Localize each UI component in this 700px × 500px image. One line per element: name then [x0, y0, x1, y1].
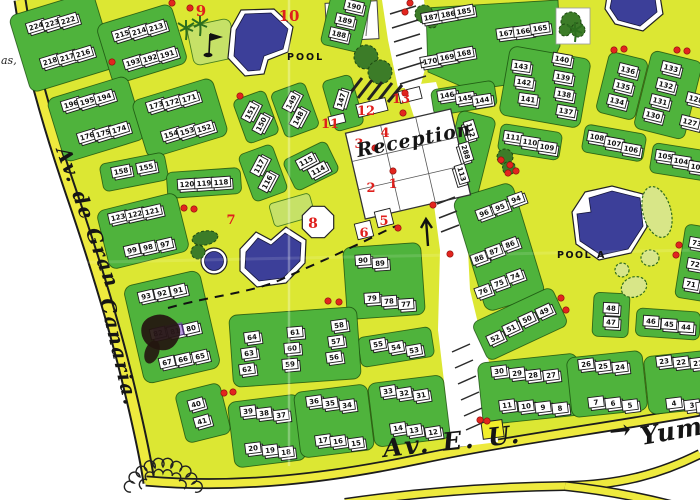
- building-block: 142: [513, 75, 536, 91]
- red-dot-marker: [395, 225, 401, 231]
- building-block: 72: [686, 257, 700, 273]
- red-area-number: 1: [388, 177, 397, 192]
- building-number: 79: [367, 294, 377, 303]
- red-dot-marker: [390, 168, 396, 174]
- red-dot-marker: [181, 205, 187, 211]
- building-block: 118: [211, 176, 233, 191]
- building-number: 30: [494, 367, 505, 376]
- building-number: 89: [375, 259, 385, 268]
- building-number: 77: [401, 300, 411, 309]
- red-dot-marker: [109, 59, 115, 65]
- red-dot-marker: [676, 242, 682, 248]
- building-number: 118: [213, 178, 228, 187]
- building-block: 165: [530, 21, 553, 37]
- bar-octagon: [302, 206, 333, 237]
- building-block: 141: [517, 92, 540, 108]
- building-number: 61: [290, 328, 301, 337]
- building-number: 78: [384, 297, 394, 306]
- building-number: 27: [546, 371, 557, 380]
- red-dot-marker: [684, 48, 690, 54]
- building-block: 46: [643, 315, 662, 329]
- building-block: 31: [413, 388, 433, 404]
- building-number: 54: [391, 343, 402, 353]
- red-dot-marker: [169, 0, 175, 6]
- red-area-number: 6: [359, 226, 368, 241]
- building-block: 144: [472, 93, 495, 109]
- building-number: 39: [243, 407, 254, 416]
- building-number: 26: [581, 360, 592, 369]
- building-block: 77: [398, 298, 417, 312]
- building-number: 28: [528, 371, 539, 380]
- red-dot-marker: [325, 298, 331, 304]
- red-dot-marker: [191, 206, 197, 212]
- building-block: 109: [536, 140, 559, 156]
- building-number: 38: [259, 409, 270, 418]
- building-number: 35: [325, 399, 336, 408]
- building-number: 55: [373, 340, 384, 350]
- red-area-number: 8: [308, 216, 318, 232]
- building-number: 33: [383, 387, 394, 396]
- red-area-number: 11: [321, 117, 339, 132]
- building-number: 71: [685, 280, 696, 290]
- map-label: →: [608, 415, 633, 447]
- building-block: 32: [396, 386, 416, 402]
- building-number: 120: [179, 180, 194, 189]
- red-dot-marker: [513, 168, 519, 174]
- red-area-number: 10: [279, 7, 300, 25]
- building-block: 71: [682, 277, 700, 293]
- red-area-number: 13: [392, 92, 410, 107]
- red-dot-marker: [430, 202, 436, 208]
- red-dot-marker: [674, 47, 680, 53]
- resort-map: 2242232222182172162152142131931921911961…: [0, 0, 700, 500]
- building-number: 56: [329, 353, 340, 362]
- red-dot-marker: [221, 390, 227, 396]
- building-number: 24: [615, 363, 626, 372]
- building-number: 10: [521, 402, 532, 411]
- building-number: 22: [676, 358, 687, 367]
- red-dot-marker: [673, 252, 679, 258]
- red-dot-marker: [400, 110, 406, 116]
- red-dot-marker: [447, 251, 453, 257]
- building-number: 63: [244, 349, 255, 358]
- red-dot-marker: [402, 9, 408, 15]
- building-number: 72: [689, 260, 700, 270]
- building-number: 11: [502, 401, 513, 410]
- building-number: 57: [331, 337, 342, 346]
- building-number: 21: [693, 359, 700, 368]
- building-number: 62: [242, 365, 253, 374]
- red-area-number: 12: [357, 104, 375, 119]
- building-number: 17: [318, 436, 329, 445]
- building-block: 53: [405, 343, 425, 359]
- building-number: 64: [247, 333, 258, 342]
- building-block: 21: [690, 357, 700, 372]
- red-area-number: 2: [366, 181, 375, 196]
- building-block: 78: [381, 295, 400, 309]
- red-dot-marker: [507, 162, 513, 168]
- building-number: 19: [265, 446, 276, 455]
- map-canvas: 2242232222182172162152142131931921911961…: [0, 0, 700, 500]
- building-number: 23: [659, 357, 670, 366]
- red-area-number: 5: [379, 214, 388, 229]
- building-number: 25: [598, 362, 609, 371]
- building-number: 46: [646, 317, 656, 326]
- red-dot-marker: [336, 299, 342, 305]
- building-number: 119: [196, 179, 211, 188]
- red-dot-marker: [611, 47, 617, 53]
- building-number: 34: [342, 401, 353, 410]
- building-number: 45: [664, 320, 674, 329]
- building-block: 89: [372, 257, 391, 271]
- building-number: 32: [399, 389, 410, 398]
- building-block: 79: [364, 292, 383, 306]
- red-dot-marker: [563, 307, 569, 313]
- map-label: as,: [1, 54, 17, 67]
- building-number: 29: [512, 369, 523, 378]
- building-block: 60: [284, 342, 303, 357]
- red-dot-marker: [237, 93, 243, 99]
- building-block: 47: [603, 316, 621, 330]
- red-dot-marker: [187, 5, 193, 11]
- building-number: 20: [248, 444, 259, 453]
- building-block: 48: [603, 302, 621, 316]
- red-dot-marker: [477, 417, 483, 423]
- red-area-number: 9: [196, 2, 206, 20]
- building-number: 53: [409, 346, 420, 356]
- building-number: 15: [351, 439, 362, 448]
- red-dot-marker: [621, 46, 627, 52]
- building-block: 45: [661, 318, 680, 332]
- building-number: 44: [681, 323, 691, 332]
- building-number: 48: [606, 304, 616, 313]
- red-area-number: 7: [226, 213, 235, 228]
- red-dot-marker: [558, 295, 564, 301]
- building-block: 54: [387, 340, 407, 356]
- map-label: POOL A: [557, 250, 606, 261]
- building-block: 44: [678, 321, 697, 335]
- red-dot-marker: [407, 0, 413, 6]
- map-label: POOL: [287, 52, 324, 63]
- red-dot-marker: [498, 157, 504, 163]
- building-block: 55: [369, 337, 389, 353]
- building-number: 31: [416, 391, 427, 400]
- building-number: 37: [276, 411, 287, 420]
- building-number: 16: [333, 437, 344, 446]
- building-block: 59: [282, 358, 301, 373]
- building-number: 36: [309, 397, 320, 406]
- building-block: 143: [510, 59, 533, 75]
- red-dot-marker: [230, 389, 236, 395]
- building-number: 47: [606, 318, 616, 327]
- red-dot-marker: [505, 170, 511, 176]
- building-number: 58: [334, 321, 345, 330]
